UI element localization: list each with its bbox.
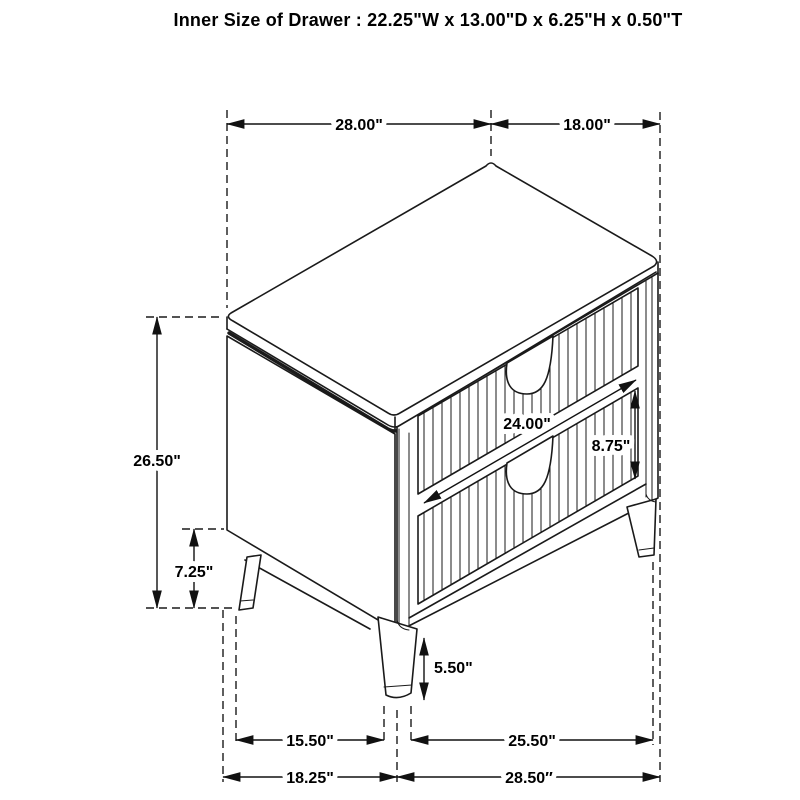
dim-leg-height: 5.50"	[424, 638, 473, 700]
dim-label-top-width: 28.00"	[335, 117, 383, 134]
dim-base-front-width: 18.25"	[223, 770, 397, 787]
dim-label-bottom-drawer-height: 8.75"	[592, 438, 631, 455]
dim-label-front-leg-span: 15.50"	[286, 733, 334, 750]
dim-base-side-depth: 28.50″	[397, 770, 660, 787]
dim-front-leg-span: 15.50"	[236, 733, 384, 750]
diagram-page: Inner Size of Drawer : 22.25"W x 13.00"D…	[0, 0, 800, 800]
dim-top-width: 28.00"	[227, 117, 491, 134]
dim-label-overall-height: 26.50"	[133, 453, 181, 470]
dim-label-top-depth: 18.00"	[563, 117, 611, 134]
nightstand-dimension-diagram: 28.00" 18.00" 26.50" 7.25" 5.50" 15.50" …	[0, 0, 800, 800]
dim-label-base-front-width: 18.25"	[286, 770, 334, 787]
dim-label-base-gap-height: 7.25"	[175, 564, 214, 581]
furniture-drawing	[227, 163, 658, 698]
dim-base-gap-height: 7.25"	[175, 529, 214, 608]
dim-label-side-leg-span: 25.50"	[508, 733, 556, 750]
dim-top-depth: 18.00"	[491, 117, 660, 134]
dim-label-leg-height: 5.50"	[434, 660, 473, 677]
dim-side-leg-span: 25.50"	[411, 733, 653, 750]
left-leg	[239, 555, 261, 610]
dim-label-drawer-width: 24.00"	[503, 416, 551, 433]
dim-label-base-side-depth: 28.50″	[505, 770, 553, 787]
